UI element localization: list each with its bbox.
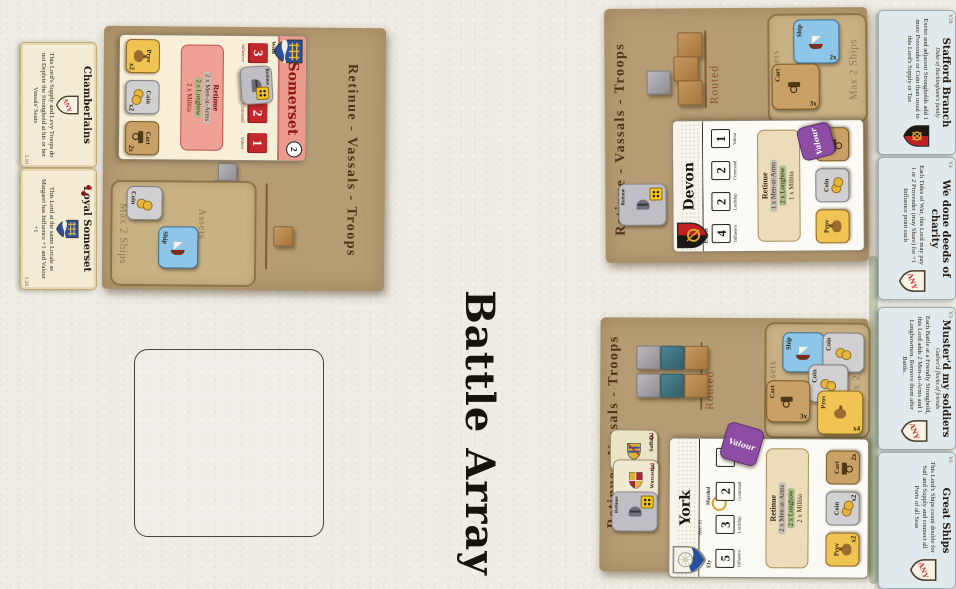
troop-cube-brown[interactable] [678,80,703,105]
card-token-row: Provx2 Coinx2 Cart2x [825,439,860,577]
stat-influence: 3 [248,43,268,63]
cart-icon [781,397,796,408]
flower-icon [86,185,91,190]
routed-divider [704,30,707,108]
card-great-ships[interactable]: Y6 Great Ships This Lord's Ships count d… [878,452,956,589]
somerset-mat: Retinue - Vassals - Troops Routed Assets… [102,26,386,291]
troop-cube-teal[interactable] [660,346,684,370]
coin-token[interactable]: Coin [126,186,162,220]
coin-token[interactable]: Coinx2 [826,491,860,525]
routed-divider [265,183,268,269]
retinue-die-token[interactable]: Retinue [618,183,666,225]
coin-icon [133,89,144,105]
retinue-ticket: Retinue 2 x Men-at-Arms 2 x Longbow 2 x … [765,448,809,568]
card-subtitle: Duke of Buckingham's family [933,17,940,148]
card-body: This Lord's Supply and Levy Troops do no… [32,49,55,161]
card-number: Y29 [947,14,953,23]
troop-cube-brown[interactable] [673,56,698,81]
prov-token[interactable]: Provx2 [825,532,859,566]
card-title: Stafford Branch [940,17,951,148]
stat-lordship: 3 [716,515,735,534]
coin-icon [835,348,851,359]
ship-icon [796,347,811,360]
card-number: L28 [23,277,29,286]
stafford-shield-icon [903,124,931,148]
prov-token[interactable]: Provx2 [126,39,160,73]
coin-token[interactable]: Coin [815,168,849,202]
stat-command: 2 [716,482,735,501]
coin-icon [820,379,836,390]
seat-label: Ely [706,560,712,568]
routed-cube-brown[interactable] [273,226,293,246]
empty-card-slot[interactable] [134,349,324,537]
card-subtitle: Gather'd flocks of friends [933,314,940,443]
cart-icon [841,460,852,475]
cart-token[interactable]: Cart 3x [766,380,810,422]
worcester-shield-icon [628,470,644,490]
retinue-die-token[interactable]: Retinue [612,491,658,531]
card-title: We done deeds of charity [929,164,951,293]
ship-icon [171,242,186,255]
card-body: Exeter and adjacent Strongholds add 1 mo… [905,17,928,121]
troop-cube-brown[interactable] [684,346,708,370]
ship-token[interactable]: Ship 2x [793,19,839,63]
heir-label: Heir #1 [699,519,704,534]
max-ships-label: Max 2 Ships [847,25,860,113]
coin-token[interactable]: Coinx2 [125,80,159,114]
provender-icon [134,50,144,62]
stat-command: 2 [711,161,730,180]
retinue-ticket: Retinue 2 x Men-at-Arms 2 x Longbow 2 x … [180,44,224,150]
any-shield-icon: ANY [56,49,80,161]
somerset-lord-card[interactable]: Somerset 2 Wells 3Influence Lordship 2Co… [118,34,307,162]
die-pips [256,86,270,100]
ship-token[interactable]: Ship [158,226,198,268]
stat-valour: 1 [247,133,267,153]
battle-array-label: Battle Array [448,280,510,586]
provender-icon [834,408,846,418]
troop-cube-gray[interactable] [647,70,671,94]
die-pips [641,496,654,509]
provender-icon [832,220,842,232]
cart-token[interactable]: Cart 3x [772,63,820,109]
card-number: L10 [23,155,29,164]
mat-header: Retinue - Vassals - Troops [342,58,360,263]
retinue-die-token[interactable]: Retinue [240,65,274,105]
die-pips [649,188,662,201]
cart-icon [788,82,803,93]
card-number: Y6 [947,456,953,463]
card-chamberlains[interactable]: L10 Chamberlains ANY This Lord's Supply … [20,42,97,168]
prov-token[interactable]: Prov [816,209,850,243]
table-surface: Battle Array L10 Chamberlains ANY This L… [0,0,956,589]
card-loyal-somerset[interactable]: L28 Loyal Somerset This Lord at the same… [20,168,97,290]
any-shield-icon: ANY [910,558,938,582]
card-body: Each Battle at a Friendly Stronghold, th… [900,314,931,416]
york-mat: Retinue - Vassals - Troops Routed Assets… [599,317,868,572]
york-shield-icon [670,545,711,575]
stat-influence: 4 [712,224,731,243]
card-body: This Lord's Ships count double for Sail … [912,459,935,555]
troop-cube-teal[interactable] [660,374,684,398]
helmet-icon [628,506,641,516]
cart-icon [133,131,144,146]
troop-cube-gray[interactable] [636,373,660,397]
seat-label: Exeter [704,228,710,244]
assets-area: Assets Max 2 Ships Coin Ship [110,180,257,287]
troop-cube-gray[interactable] [636,345,660,369]
devon-mat: Retinue - Vassals - Troops Routed Assets… [604,7,869,263]
stat-influence: 5 [715,549,734,568]
card-musterd-my-soldiers[interactable]: Y3 Muster'd my soldiers Gather'd flocks … [878,307,956,450]
card-stafford-branch[interactable]: Y29 Stafford Branch Duke of Buckingham's… [878,10,956,155]
assets-area: Assets Max 2 Ships Ship Coin Coin x2 Car… [764,322,871,439]
suffolk-shield-icon [626,441,642,461]
provender-icon [841,544,851,556]
card-body: Each Tides of War, this Lord may pay 1 o… [901,164,924,266]
york-lord-card[interactable]: York Heir #1 Ely Marshal 5Influence 3Lor… [668,438,869,579]
helmet-icon [636,200,649,210]
retinue-ticket: Retinue 1 x Men-at-Arms 2 x Longbow 1 x … [757,130,801,242]
seat-label: Wells [270,41,276,54]
cart-token[interactable]: Cart2x [826,450,860,484]
stat-row: 4Influence 2Lordship 2Command 1Valour [711,123,737,249]
card-we-done-deeds[interactable]: Y4 We done deeds of charity Each Tides o… [878,157,956,300]
card-body: This Lord at the same Locale as Margaret… [32,175,55,283]
ship-icon [809,36,824,49]
card-token-row: Provx2 Coinx2 Cart2x [125,35,160,159]
coin-icon [137,198,153,209]
lord-number-badge: 2 [286,141,302,157]
coin-icon [831,177,842,193]
stat-command: 2 [247,103,267,123]
card-title: Great Ships [940,459,951,582]
cart-token[interactable]: Cart2x [125,121,159,155]
portcullis-shield-icon [56,175,80,283]
any-shield-icon: ANY [899,269,927,293]
prov-token[interactable]: Prov x4 [817,390,863,434]
routed-label: Routed [708,38,720,104]
card-number: Y3 [947,311,953,318]
troop-cube-brown[interactable] [684,374,708,398]
troop-cube-brown[interactable] [677,32,702,57]
card-number: Y4 [947,161,953,168]
board-edge [869,256,878,584]
coin-icon [841,501,852,517]
any-shield-icon: ANY [901,419,929,443]
flower-icon [81,191,86,196]
stat-lordship: 2 [711,192,730,211]
assets-area: Assets Max 2 Ships Ship 2x Cart 3x [767,13,868,124]
stat-valour: 1 [711,129,730,148]
card-title: Chamberlains [81,49,92,161]
card-title: Muster'd my soldiers [940,314,951,443]
devon-lord-card[interactable]: Devon Exeter 4Influence 2Lordship 2Comma… [672,119,865,252]
